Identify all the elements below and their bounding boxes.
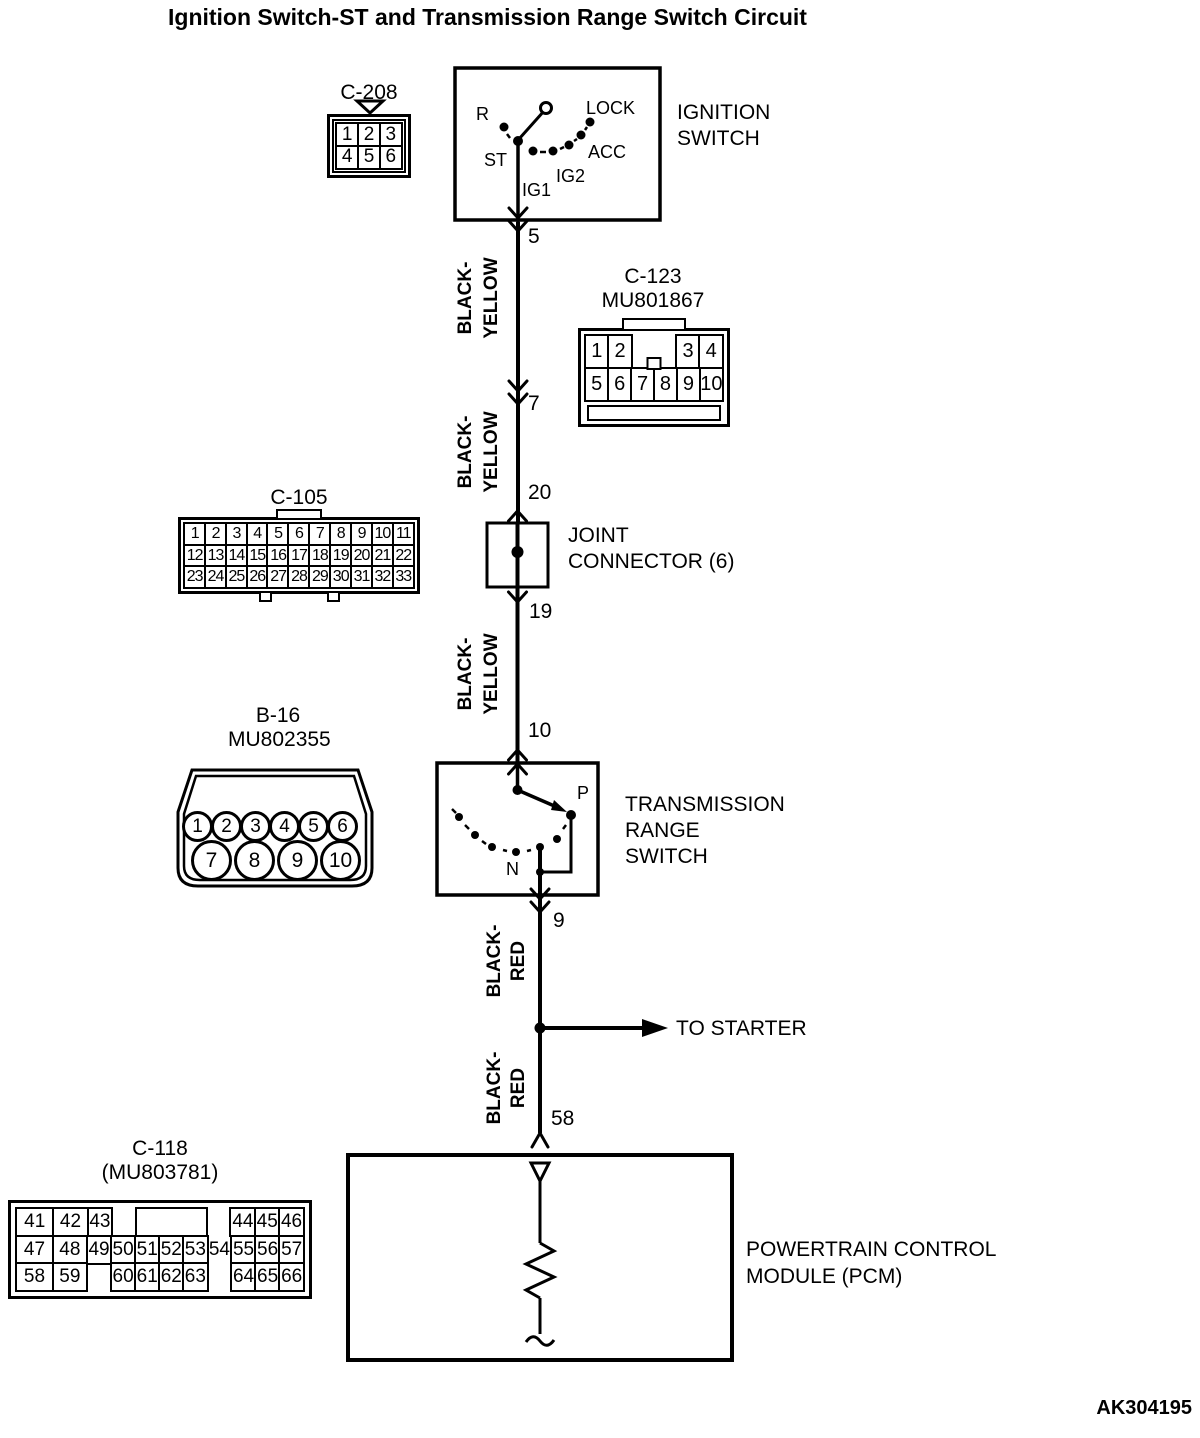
pin-cell-46: 46 (278, 1207, 305, 1237)
ignition-lever-knob (541, 103, 552, 114)
pin-cell-16: 16 (266, 544, 289, 568)
trs-arc-dash-5 (563, 825, 566, 829)
position-label-ig2: IG2 (556, 164, 585, 189)
pin-cell-3: 3 (379, 122, 403, 147)
trs-label-3: SWITCH (625, 844, 708, 869)
to-starter-arrowhead (642, 1019, 668, 1037)
pin-number-5: 5 (528, 225, 540, 249)
connector-c123-name: C-123 (593, 264, 713, 289)
pin-cell-29: 29 (308, 565, 331, 589)
connector-row: 78910 (191, 840, 361, 881)
pin-number-20: 20 (528, 481, 551, 505)
pin-cell-2: 2 (357, 122, 381, 147)
pin-cell-64: 64 (230, 1262, 257, 1292)
position-label-lock: LOCK (586, 96, 635, 121)
pin-cell-4: 4 (269, 811, 300, 842)
pin-cell-1: 1 (182, 811, 213, 842)
pin-cell-43: 43 (87, 1207, 114, 1237)
tick-lock (585, 127, 587, 130)
pin-cell-4: 4 (698, 334, 724, 369)
wire-color-black-red-2b: RED (508, 1068, 530, 1108)
pin-cell-13: 13 (204, 544, 227, 568)
c105-bottom-tab-2 (327, 593, 340, 602)
pin-cell-4: 4 (335, 145, 359, 170)
trs-arc-dot-4 (512, 848, 520, 856)
pin-number-10: 10 (528, 719, 551, 743)
pin-cell-33: 33 (392, 565, 415, 589)
pin-cell-9: 9 (676, 367, 701, 402)
joint-connector-dot (512, 546, 524, 558)
trs-position-n: N (506, 857, 519, 882)
connector-row: 2324252627282930313233 (183, 565, 415, 589)
joint-connector-label-2: CONNECTOR (6) (568, 549, 734, 574)
wire-color-black-yellow-1b: YELLOW (481, 257, 503, 338)
ignition-lever (519, 111, 544, 139)
pin-cell-5: 5 (266, 522, 289, 546)
connector-c123-part: MU801867 (593, 288, 713, 313)
diagram-code: AK304195 (1040, 1397, 1192, 1420)
trs-p-branch-wire (540, 815, 571, 872)
pin-cell-14: 14 (225, 544, 248, 568)
ignition-switch-box (455, 68, 660, 220)
pin-cell-28: 28 (287, 565, 310, 589)
pin-cell-25: 25 (225, 565, 248, 589)
pin-cell-45: 45 (254, 1207, 281, 1237)
pin-cell-7: 7 (191, 840, 232, 881)
starter-junction-dot (535, 1023, 546, 1034)
tick-ig2 (560, 147, 564, 149)
pin-cell-24: 24 (204, 565, 227, 589)
page-title: Ignition Switch-ST and Transmission Rang… (168, 4, 807, 31)
position-label-r: R (476, 102, 489, 127)
connector-row: 1234567891011 (183, 522, 415, 546)
pin-cell-60: 60 (110, 1262, 137, 1292)
pin-cell-8: 8 (329, 522, 352, 546)
pin-cell-9: 9 (350, 522, 373, 546)
connector-b16-part: MU802355 (228, 727, 328, 752)
pcm-label-2: MODULE (PCM) (746, 1264, 902, 1289)
connector-c208-grid: 123456 (332, 119, 406, 173)
pin-cell-2: 2 (607, 334, 633, 369)
pin-cell-5: 5 (357, 145, 381, 170)
pin-cell-6: 6 (327, 811, 358, 842)
pin-cell-63: 63 (182, 1262, 209, 1292)
pin-cell-62: 62 (158, 1262, 185, 1292)
wire-color-black-red-1b: RED (508, 941, 530, 981)
c105-top-tab (276, 509, 322, 518)
connector-row: 1213141516171819202122 (183, 544, 415, 568)
tick-acc (574, 139, 577, 141)
trs-arc-dash-3 (503, 850, 507, 851)
trs-arc-dot-3 (488, 843, 496, 851)
connector-c105-name: C-105 (249, 485, 349, 510)
pin-cell-9: 9 (277, 840, 318, 881)
pin-cell-20: 20 (350, 544, 373, 568)
connector-row: 456 (335, 145, 403, 170)
connector-c118-name: C-118 (90, 1136, 230, 1161)
pin-cell-6: 6 (379, 145, 403, 170)
connector-row: 4748495051525354555657 (15, 1235, 305, 1265)
wire-color-black-yellow-3b: YELLOW (481, 633, 503, 714)
pin-cell-12: 12 (183, 544, 206, 568)
pin-cell-32: 32 (371, 565, 394, 589)
pin-cell-5: 5 (298, 811, 329, 842)
connector-c118-part: (MU803781) (90, 1160, 230, 1185)
connector-row: 123456 (182, 811, 358, 842)
pin-cell-22: 22 (392, 544, 415, 568)
pin-cell-10: 10 (699, 367, 724, 402)
pin-cell-48: 48 (52, 1235, 89, 1265)
trs-position-p: P (577, 781, 589, 806)
blank-cell (111, 1207, 138, 1237)
wire-color-black-yellow-2b: YELLOW (481, 411, 503, 492)
pin-number-19: 19 (529, 600, 552, 624)
connector-row: 585960616263646566 (15, 1262, 305, 1292)
pin-cell-59: 59 (52, 1262, 89, 1292)
trs-label-2: RANGE (625, 818, 700, 843)
pin-cell-6: 6 (607, 367, 632, 402)
pin-cell-52: 52 (158, 1235, 185, 1265)
wire-color-black-yellow-1a: BLACK- (455, 262, 477, 335)
connector-c208-name: C-208 (327, 80, 411, 105)
pin-cell-55: 55 (230, 1235, 257, 1265)
contact-r-dot (500, 123, 509, 132)
pin-cell-15: 15 (246, 544, 269, 568)
connector-c105: 1234567891011121314151617181920212223242… (178, 517, 420, 594)
pin-cell-21: 21 (371, 544, 394, 568)
pin-cell-44: 44 (229, 1207, 256, 1237)
pin-cell-30: 30 (329, 565, 352, 589)
connector-c118-grid: 4142434445464748495051525354555657585960… (15, 1207, 305, 1292)
pin-cell-8: 8 (234, 840, 275, 881)
c123-keyway-tab (647, 357, 662, 370)
pin-cell-66: 66 (278, 1262, 305, 1292)
pin-cell-54: 54 (206, 1235, 233, 1265)
connector-row: 414243444546 (15, 1207, 305, 1237)
position-label-ig1: IG1 (522, 178, 551, 203)
pin-cell-19: 19 (329, 544, 352, 568)
c123-bottom-strip (587, 405, 721, 421)
pin-cell-56: 56 (254, 1235, 281, 1265)
pin-cell-23: 23 (183, 565, 206, 589)
pcm-resistor (526, 1243, 554, 1298)
c123-top-tab (622, 318, 686, 329)
blank-cell (206, 1262, 233, 1292)
trs-arc-dot-2 (471, 831, 479, 839)
pin-cell-65: 65 (254, 1262, 281, 1292)
pin-cell-51: 51 (134, 1235, 161, 1265)
blank-cell (135, 1207, 208, 1237)
pcm-wire-end-squiggle (526, 1337, 554, 1346)
c105-bottom-tab-1 (259, 593, 272, 602)
ignition-switch-label-2: SWITCH (677, 126, 760, 151)
pin-cell-5: 5 (584, 367, 609, 402)
pin-cell-27: 27 (266, 565, 289, 589)
blank-cell (86, 1262, 113, 1292)
pin-cell-17: 17 (287, 544, 310, 568)
ignition-pivot-dot (513, 136, 523, 146)
contact-acc-dot (577, 131, 586, 140)
pcm-label-1: POWERTRAIN CONTROL (746, 1237, 996, 1262)
pin-cell-41: 41 (15, 1207, 54, 1237)
pin-cell-42: 42 (52, 1207, 89, 1237)
pin-cell-53: 53 (182, 1235, 209, 1265)
connector-b16-name: B-16 (228, 703, 328, 728)
pin-cell-10: 10 (320, 840, 361, 881)
tick-r (507, 134, 510, 138)
pin-cell-11: 11 (392, 522, 415, 546)
trs-contact-n-dot (536, 843, 544, 851)
pin-number-9: 9 (553, 909, 565, 933)
contact-ig1-dot-a (529, 147, 538, 156)
pin-cell-31: 31 (350, 565, 373, 589)
trs-arc-dot-5 (553, 835, 561, 843)
connector-c118: 4142434445464748495051525354555657585960… (8, 1200, 312, 1299)
to-starter-label: TO STARTER (676, 1016, 807, 1041)
pin-cell-2: 2 (204, 522, 227, 546)
pin-cell-1: 1 (183, 522, 206, 546)
pin-number-58: 58 (551, 1107, 574, 1131)
connector-b16: 12345678910 (176, 758, 374, 890)
ignition-switch-label-1: IGNITION (677, 100, 770, 125)
trs-arc-dash-2 (482, 841, 486, 844)
wire-color-black-red-1a: BLACK- (484, 925, 506, 998)
contact-ig2-dot (565, 141, 574, 150)
pin-cell-3: 3 (225, 522, 248, 546)
trs-arc-dash-4 (527, 850, 531, 851)
connector-row: 5678910 (584, 367, 724, 402)
trs-arc-dot-1 (455, 813, 463, 821)
connector-c208: 123456 (327, 114, 411, 178)
connector-c123: 12345678910 (578, 328, 730, 427)
pin-cell-6: 6 (287, 522, 310, 546)
pin-cell-47: 47 (15, 1235, 54, 1265)
contact-ig1-dot-b (549, 147, 558, 156)
pin-cell-57: 57 (278, 1235, 305, 1265)
pin-cell-18: 18 (308, 544, 331, 568)
pin-cell-7: 7 (308, 522, 331, 546)
pin-cell-58: 58 (15, 1262, 54, 1292)
wire-color-black-red-2a: BLACK- (484, 1052, 506, 1125)
connector-c105-grid: 1234567891011121314151617181920212223242… (183, 522, 415, 589)
pin-number-7: 7 (528, 392, 540, 416)
pin-cell-26: 26 (246, 565, 269, 589)
pin-cell-3: 3 (675, 334, 701, 369)
pin-cell-2: 2 (211, 811, 242, 842)
joint-connector-label-1: JOINT (568, 523, 629, 548)
pcm-input-triangle (531, 1163, 549, 1181)
position-label-st: ST (484, 148, 507, 173)
pin-cell-8: 8 (653, 367, 678, 402)
pin-cell-50: 50 (110, 1235, 137, 1265)
pin-cell-4: 4 (246, 522, 269, 546)
blank-cell (205, 1207, 232, 1237)
terminal-pin58 (532, 1133, 548, 1147)
trs-arc-dash-0 (452, 809, 456, 813)
trs-branch-junction-dot (536, 868, 544, 876)
pin-cell-1: 1 (335, 122, 359, 147)
wire-color-black-yellow-2a: BLACK- (455, 416, 477, 489)
wiring-diagram-page: Ignition Switch-ST and Transmission Rang… (0, 0, 1200, 1438)
position-label-acc: ACC (588, 140, 626, 165)
trs-label-1: TRANSMISSION (625, 792, 785, 817)
pin-cell-7: 7 (630, 367, 655, 402)
connector-b16-grid: 12345678910 (176, 758, 374, 890)
pin-cell-3: 3 (240, 811, 271, 842)
trs-lever-arrowhead (551, 800, 567, 812)
pin-cell-49: 49 (86, 1235, 113, 1265)
pin-cell-10: 10 (371, 522, 394, 546)
connector-row: 123 (335, 122, 403, 147)
pin-cell-61: 61 (134, 1262, 161, 1292)
wire-color-black-yellow-3a: BLACK- (455, 638, 477, 711)
pin-cell-1: 1 (584, 334, 610, 369)
trs-arc-dash-1 (465, 825, 469, 829)
